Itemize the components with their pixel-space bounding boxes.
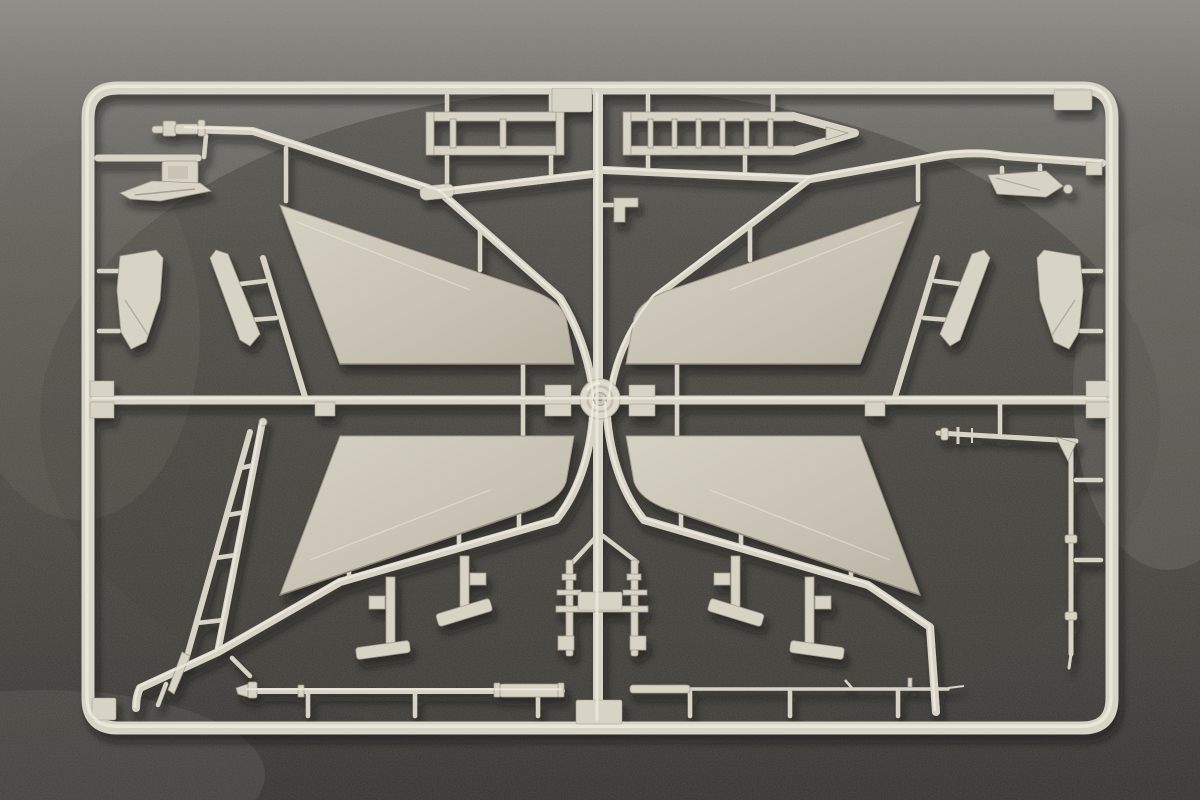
ladder-rung [197, 620, 224, 623]
nozzle-body [175, 124, 199, 134]
mast-collar [1065, 612, 1077, 620]
tab-bottom-center [576, 700, 622, 724]
tab-runner-small [865, 402, 885, 416]
launch-rail-crossbar [623, 590, 647, 595]
barrel-thick-section [498, 684, 562, 697]
tab-top-center [552, 88, 592, 112]
pitot-stub [908, 678, 912, 687]
tab-right-rail-step [1086, 162, 1102, 175]
tab-hub-flank [545, 404, 571, 416]
bracket-tab [815, 596, 831, 609]
ladder-end-cap [426, 112, 434, 155]
tab-runner-small [315, 402, 335, 416]
bracket-tab [470, 573, 486, 585]
tab-hub-flank [545, 385, 571, 397]
ladder-bottom-rail [428, 146, 562, 155]
ladder-rung [215, 555, 236, 558]
pitot-thick-segment [630, 685, 690, 693]
sprue-gate [935, 281, 960, 284]
tab-hub-flank [629, 385, 655, 397]
sprue-gate [204, 136, 206, 157]
mast-tip [1069, 654, 1071, 668]
mast-end-ring [941, 428, 948, 440]
tab-hub-flank [629, 404, 655, 416]
tab-top-right-corner [1054, 90, 1092, 110]
ladder-rung [672, 119, 677, 148]
launch-rail-foot [558, 636, 574, 650]
mast-collar [1065, 535, 1077, 543]
bracket-stem [731, 556, 740, 612]
barrel-ring [298, 685, 304, 697]
launch-rail-foot [630, 636, 646, 650]
launch-rail-collar [627, 574, 641, 580]
ladder-rung [450, 119, 456, 148]
bracket-tab [714, 573, 730, 585]
bracket-stem [460, 556, 469, 612]
ladder-rung [768, 119, 773, 148]
equipment-box-recess [168, 166, 188, 179]
tab-left-rail [90, 381, 114, 397]
ladder-end-cap [623, 112, 631, 155]
tab-right-rail [1086, 381, 1110, 397]
ladder-end-cap [556, 112, 564, 155]
bracket-stem [386, 577, 395, 643]
tab-right-rail [1086, 402, 1110, 418]
intake-wedge-nub [1064, 185, 1073, 194]
ladder-rung [696, 119, 701, 148]
sprue-photo-canvas [0, 0, 1200, 800]
ladder-rung [648, 119, 653, 148]
ladder-rung [500, 119, 506, 148]
bracket-stem [805, 577, 814, 643]
tab-left-rail [90, 402, 114, 418]
nozzle-tip [152, 126, 164, 133]
launch-rail-crossbar [557, 590, 581, 595]
ladder-rung [720, 119, 725, 148]
ladder-top-rail [428, 112, 562, 121]
photo-model-sprue [0, 0, 1200, 800]
nozzle-collar [163, 121, 176, 136]
center-block [578, 592, 622, 610]
bracket-tab [369, 596, 385, 609]
tab-bottom-left-corner [92, 698, 116, 720]
ladder-rung [744, 119, 749, 148]
sprue-gate [240, 281, 265, 284]
launch-rail-collar [562, 574, 576, 580]
